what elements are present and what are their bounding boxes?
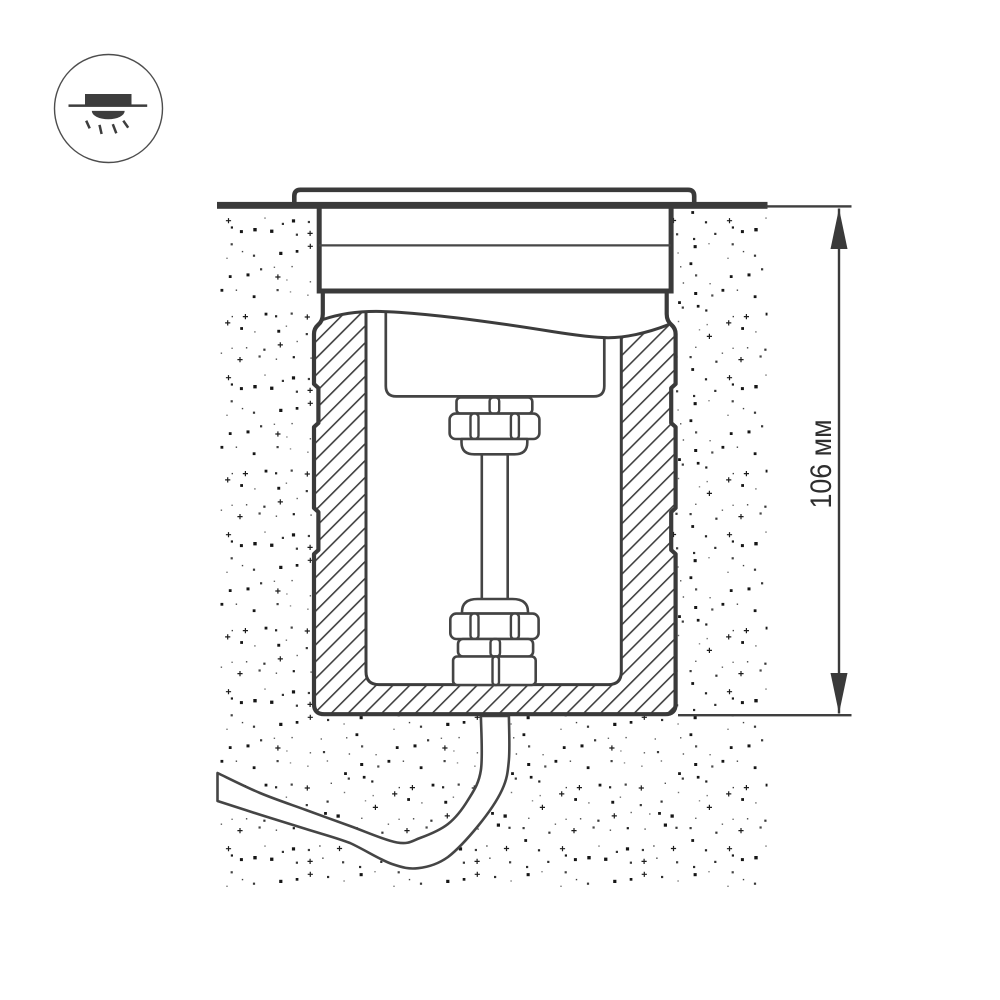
svg-text:106 мм: 106 мм [805, 420, 838, 509]
